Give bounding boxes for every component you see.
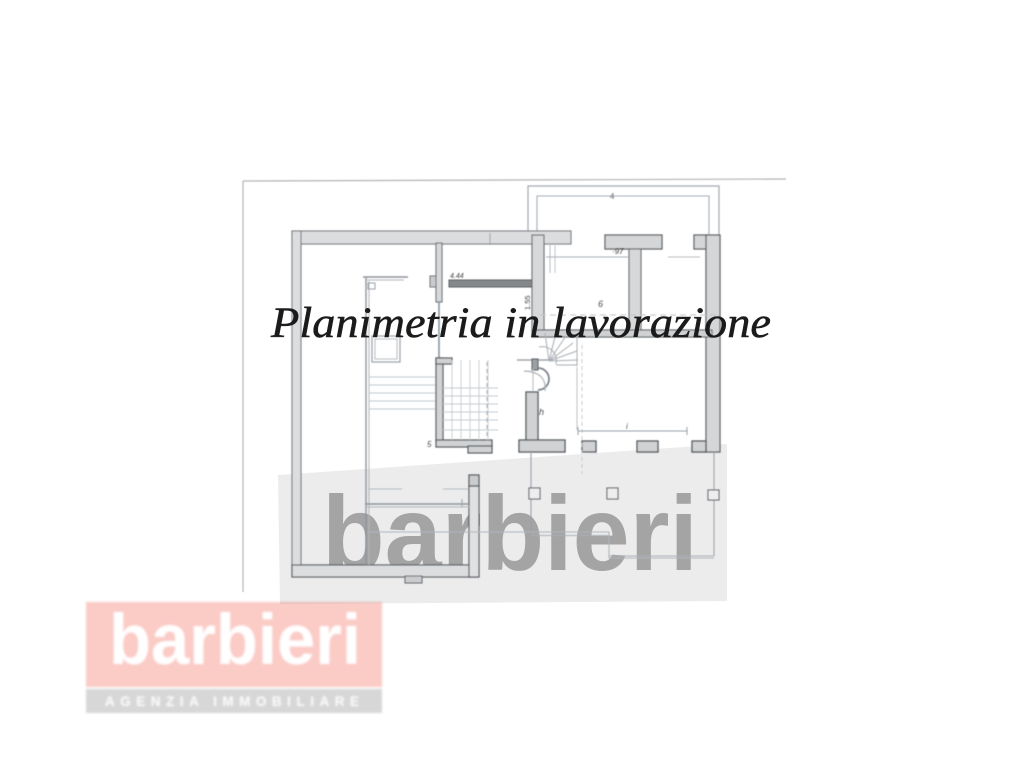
svg-text:4: 4 <box>610 192 615 201</box>
svg-text:h: h <box>539 407 544 417</box>
svg-text:barbieri: barbieri <box>109 601 361 680</box>
svg-text:Planimetria in lavorazione: Planimetria in lavorazione <box>270 300 771 347</box>
svg-text:i: i <box>626 422 628 431</box>
svg-text:4.44: 4.44 <box>450 273 464 280</box>
svg-text:5: 5 <box>427 440 432 449</box>
svg-text:AGENZIA IMMOBILIARE: AGENZIA IMMOBILIARE <box>105 694 359 709</box>
svg-text:·97: ·97 <box>612 247 624 256</box>
